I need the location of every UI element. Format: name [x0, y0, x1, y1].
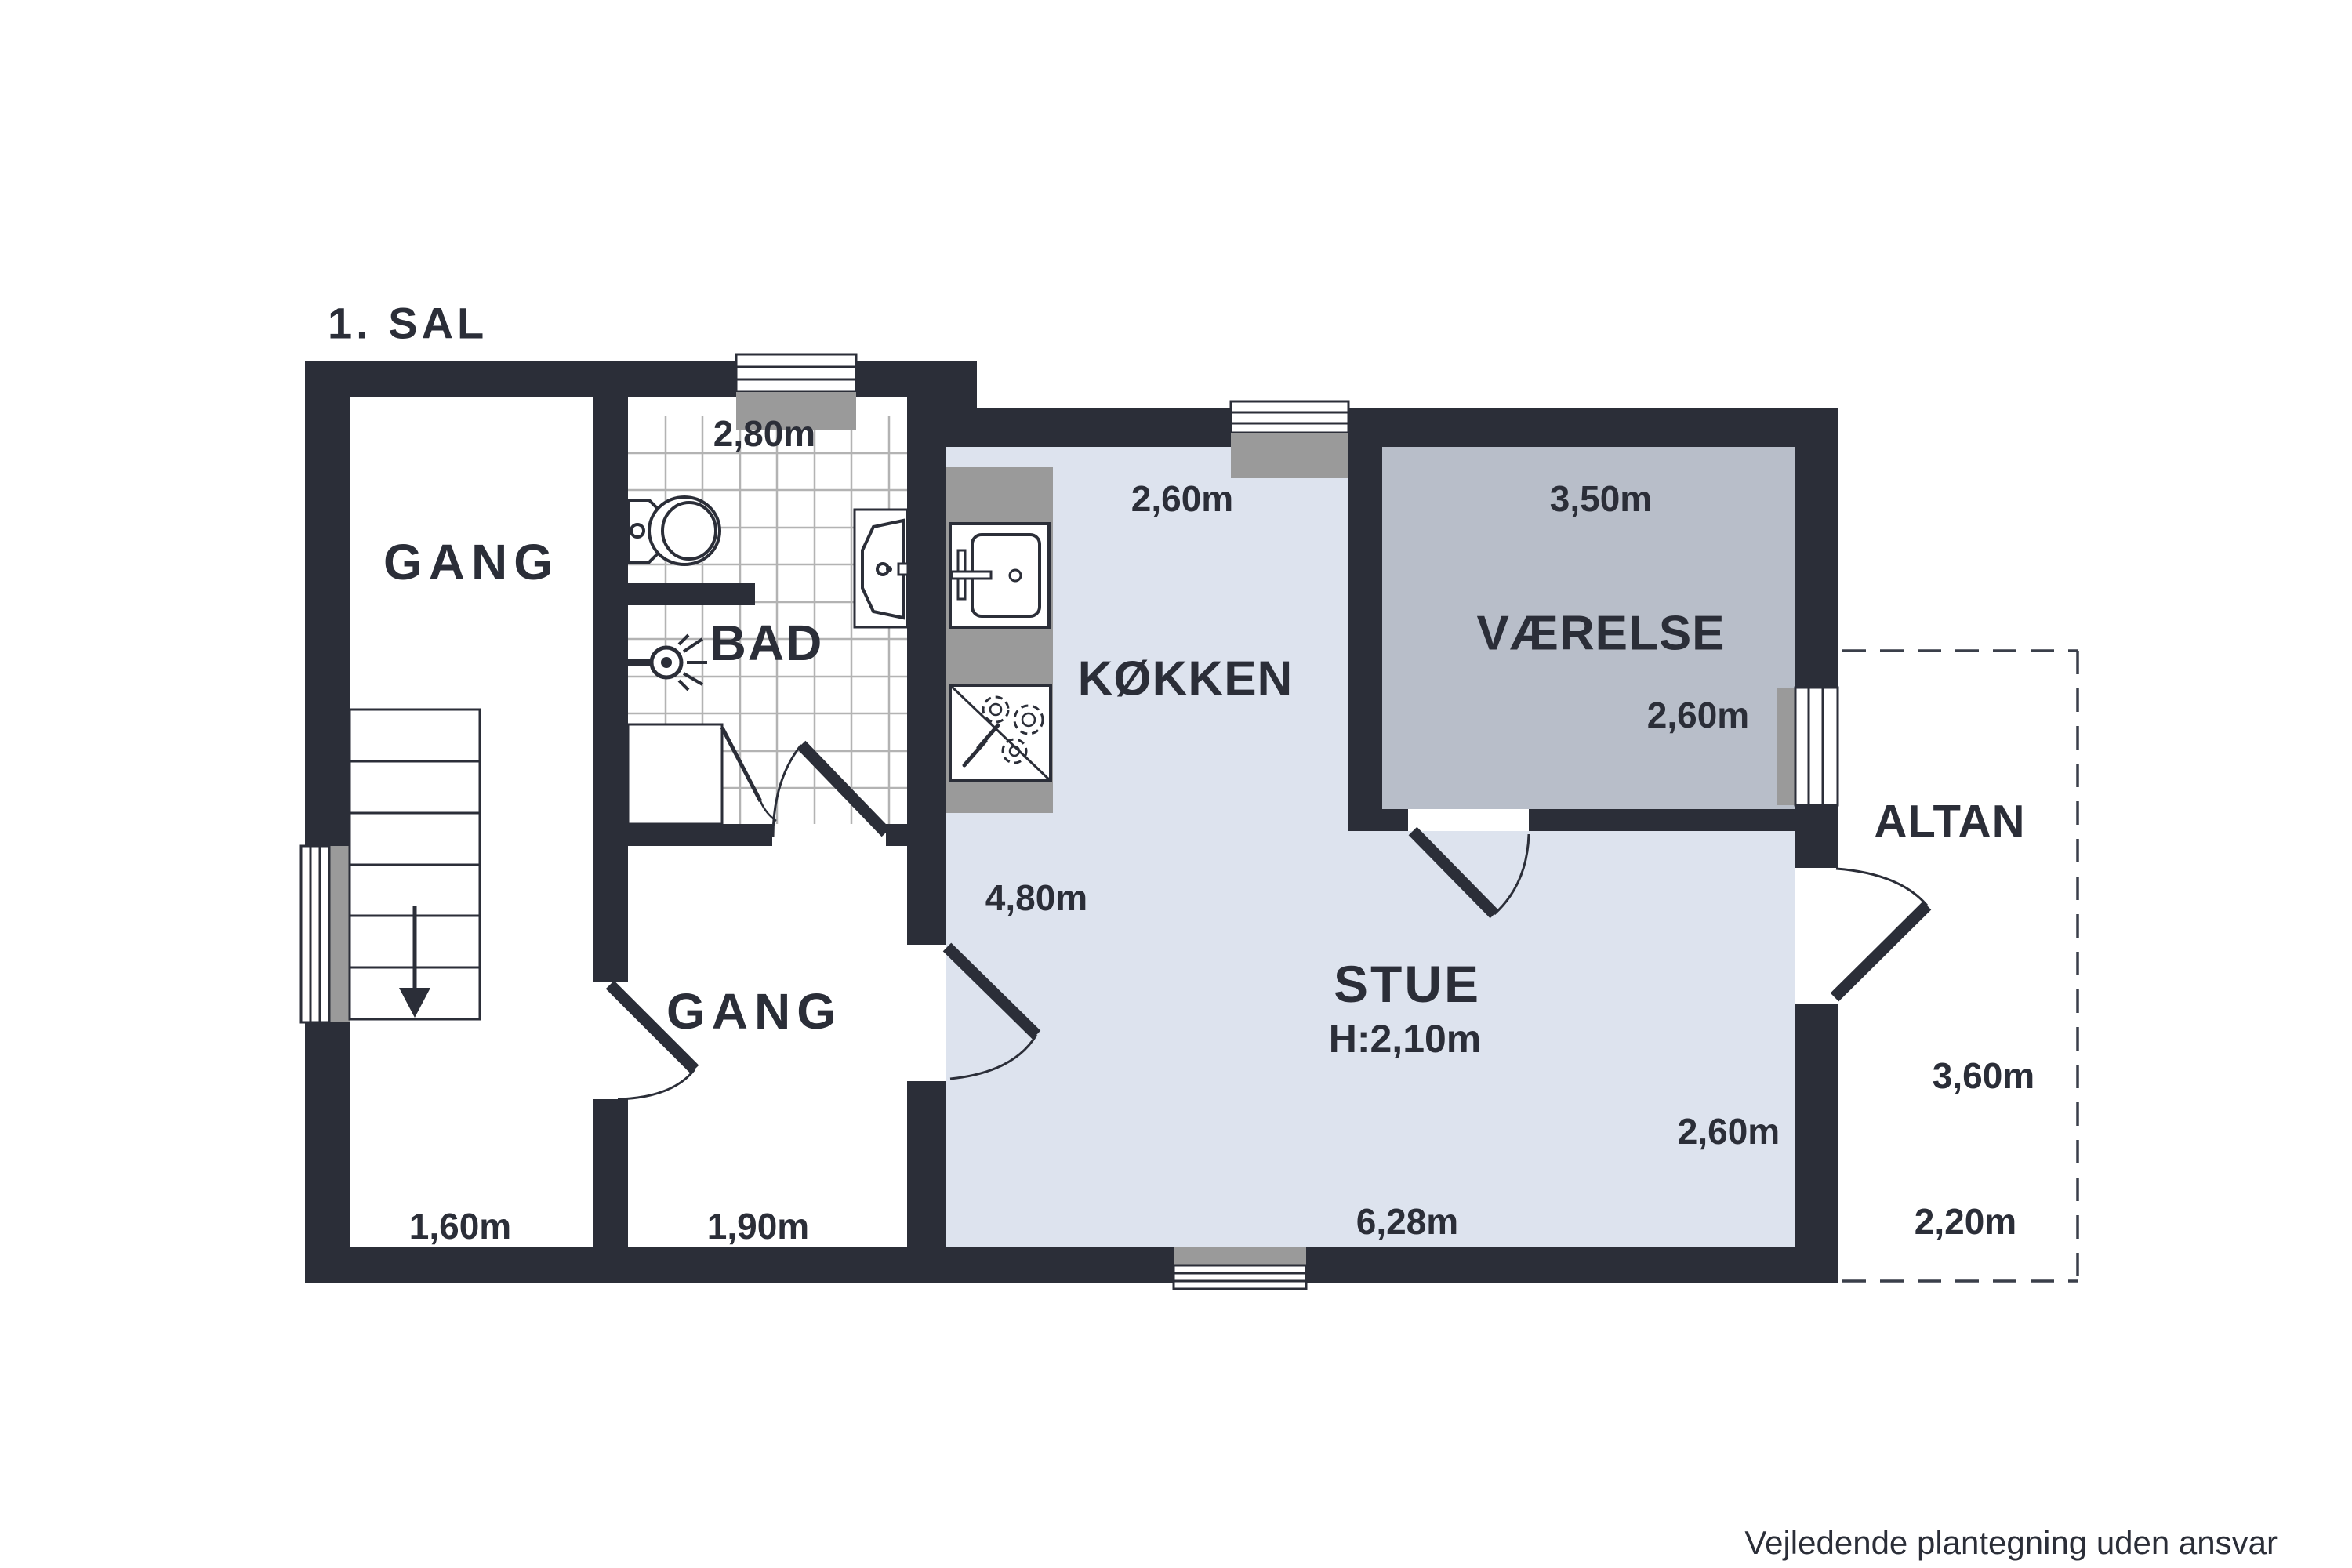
room-label-vaerelse: VÆRELSE: [1476, 606, 1725, 662]
dim-altan-depth: 3,60m: [1933, 1054, 2034, 1097]
dim-vaerelse-depth: 2,60m: [1647, 694, 1749, 736]
wall-bedroom-left: [1348, 447, 1382, 809]
floorplan-drawing: [0, 0, 2352, 1568]
dim-kokken-depth: 4,80m: [985, 877, 1087, 919]
window-livingroom-icon: [1174, 1247, 1306, 1289]
window-kitchen-icon: [1231, 401, 1348, 478]
dim-gang-left-width: 1,60m: [409, 1205, 511, 1247]
toilet-icon: [628, 497, 720, 564]
room-label-kokken: KØKKEN: [1078, 652, 1294, 707]
kitchen-sink-icon: [950, 524, 1049, 627]
wall-hall-partition-lower: [593, 1099, 628, 1247]
floor-title: 1. SAL: [328, 298, 488, 349]
wall-right-lower: [1795, 1004, 1838, 1283]
wall-bath-privacy: [628, 583, 755, 605]
dim-stue-ceiling-height: H:2,10m: [1329, 1016, 1482, 1062]
wall-bedroom-bottom: [1529, 809, 1795, 831]
dim-kokken-width: 2,60m: [1131, 477, 1233, 520]
room-label-altan: ALTAN: [1875, 796, 2026, 848]
wall-right-mid: [1795, 805, 1838, 868]
room-label-bad: BAD: [710, 614, 824, 672]
wall-midgang-stue-upper: [907, 846, 946, 945]
wall-bottom: [305, 1247, 1838, 1283]
wall-top-right-section: [938, 408, 1838, 447]
dim-bad-width: 2,80m: [713, 412, 815, 455]
room-label-gang-mid: GANG: [666, 982, 842, 1040]
floorplan-page: 1. SAL GANG 1,60m BAD 2,80m GANG 1,90m K…: [0, 0, 2352, 1568]
dim-stue-width: 6,28m: [1356, 1200, 1458, 1243]
wall-right-upper: [1795, 408, 1838, 688]
window-bedroom-icon: [1777, 688, 1838, 805]
dim-stue-depth: 2,60m: [1678, 1110, 1780, 1152]
door-balcony: [1835, 869, 1927, 997]
dim-vaerelse-width: 3,50m: [1550, 477, 1652, 520]
bathroom-sink-icon: [855, 510, 908, 627]
balcony-outline: [1842, 651, 2078, 1281]
room-label-gang-left: GANG: [383, 533, 559, 591]
wall-bedroom-bottom-stub: [1348, 809, 1408, 831]
wall-top-left-section: [305, 361, 977, 397]
wall-left: [305, 361, 350, 1283]
wall-midgang-stue-lower: [907, 1081, 946, 1247]
room-label-stue: STUE: [1334, 954, 1481, 1014]
dim-altan-width: 2,20m: [1915, 1200, 2016, 1243]
stove-icon: [950, 685, 1051, 781]
dim-gang-mid-width: 1,90m: [707, 1205, 809, 1247]
wall-hall-partition-upper: [593, 397, 628, 982]
wall-bath-bottom-left: [628, 824, 772, 846]
disclaimer-text: Vejledende plantegning uden ansvar: [1744, 1524, 2278, 1562]
window-hall-icon: [301, 846, 350, 1022]
wall-bath-kitchen: [907, 397, 946, 846]
stairs-icon: [350, 710, 480, 1019]
